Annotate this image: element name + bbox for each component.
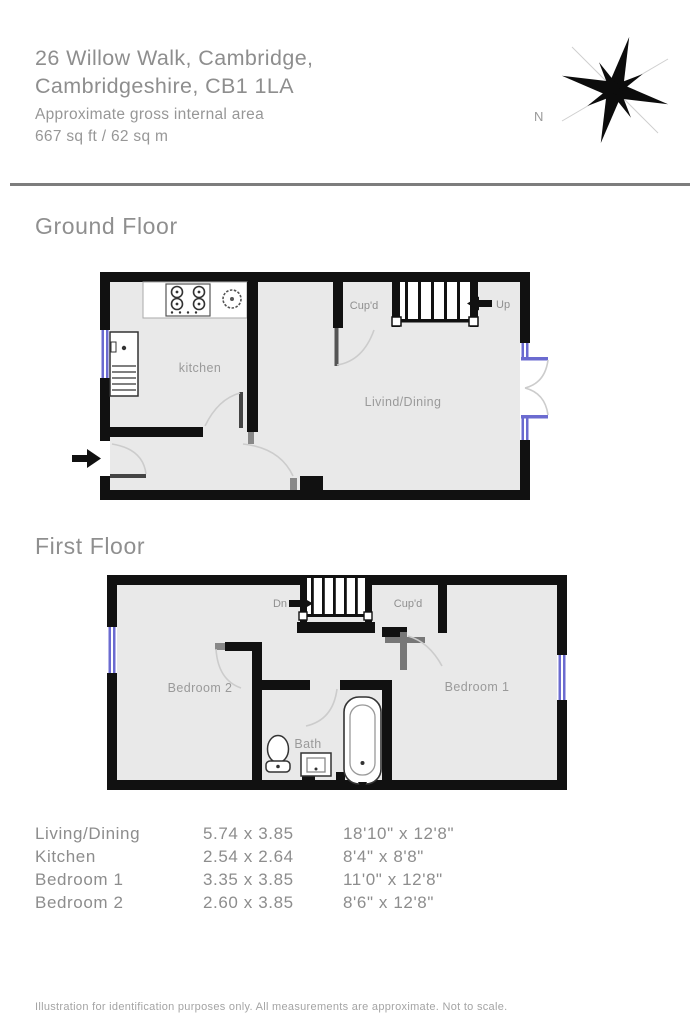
- first-floor-plan: Dn Cup'd: [95, 570, 585, 800]
- address-line-1: 26 Willow Walk, Cambridge,: [35, 44, 313, 72]
- ff-dividing-wall: [252, 642, 262, 782]
- room-metric-size: 2.54 x 2.64: [203, 845, 343, 868]
- basin-icon: [301, 753, 331, 776]
- gf-bottom-wall-pier: [300, 476, 323, 490]
- ff-bedroom1-label: Bedroom 1: [445, 680, 510, 694]
- address-line-2: Cambridgeshire, CB1 1LA: [35, 72, 313, 100]
- floorplan-page: 26 Willow Walk, Cambridge, Cambridgeshir…: [0, 0, 700, 1031]
- gf-kitchen-hall-wall: [110, 427, 203, 437]
- table-row: Living/Dining 5.74 x 3.85 18'10" x 12'8": [35, 822, 505, 845]
- area-line-2: 667 sq ft / 62 sq m: [35, 126, 264, 148]
- header-divider: [10, 183, 690, 186]
- table-row: Bedroom 2 2.60 x 3.85 8'6" x 12'8": [35, 891, 505, 914]
- gf-sink-unit-icon: [110, 332, 138, 396]
- ground-floor-title: Ground Floor: [35, 213, 178, 240]
- gf-kitchen-label: kitchen: [179, 361, 221, 375]
- room-name: Living/Dining: [35, 822, 203, 845]
- room-imperial-size: 18'10" x 12'8": [343, 822, 505, 845]
- table-row: Bedroom 1 3.35 x 3.85 11'0" x 12'8": [35, 868, 505, 891]
- gross-internal-area: Approximate gross internal area 667 sq f…: [35, 104, 264, 148]
- disclaimer-text: Illustration for identification purposes…: [35, 1001, 508, 1013]
- room-name: Bedroom 2: [35, 891, 203, 914]
- dimensions-table: Living/Dining 5.74 x 3.85 18'10" x 12'8"…: [35, 822, 505, 914]
- gf-left-window: [100, 330, 110, 378]
- gf-wall-stub2: [290, 478, 297, 490]
- toilet-icon: [266, 736, 290, 773]
- ff-bedroom2-label: Bedroom 2: [168, 681, 233, 695]
- ff-bath-label: Bath: [294, 737, 321, 751]
- ff-cupboard-label: Cup'd: [394, 598, 422, 610]
- ff-left-window: [107, 627, 117, 673]
- room-metric-size: 3.35 x 3.85: [203, 868, 343, 891]
- first-floor-title: First Floor: [35, 533, 145, 560]
- ff-right-window: [557, 655, 567, 700]
- gf-cupboard-label: Cup'd: [350, 300, 378, 312]
- gf-living-label: Livind/Dining: [365, 395, 442, 409]
- gf-french-doors: [520, 343, 548, 440]
- gf-stairs: [392, 282, 478, 327]
- compass-north-label: N: [534, 109, 543, 124]
- gf-stairs-label: Up: [496, 299, 510, 311]
- compass-rose-icon: N: [520, 25, 690, 170]
- area-line-1: Approximate gross internal area: [35, 104, 264, 126]
- bathtub-icon: [344, 697, 381, 790]
- gf-kitchen-counter: [143, 282, 247, 318]
- table-row: Kitchen 2.54 x 2.64 8'4" x 8'8": [35, 845, 505, 868]
- gf-wall-stub: [248, 432, 254, 444]
- room-imperial-size: 8'6" x 12'8": [343, 891, 505, 914]
- room-name: Kitchen: [35, 845, 203, 868]
- room-metric-size: 2.60 x 3.85: [203, 891, 343, 914]
- room-imperial-size: 11'0" x 12'8": [343, 868, 505, 891]
- ff-cupboard-wall: [438, 585, 447, 633]
- ff-stairs-label: Dn: [273, 598, 287, 610]
- entrance-arrow-icon: [72, 449, 101, 468]
- room-name: Bedroom 1: [35, 868, 203, 891]
- room-metric-size: 5.74 x 3.85: [203, 822, 343, 845]
- gf-kitchen-living-wall: [247, 282, 258, 432]
- property-address: 26 Willow Walk, Cambridge, Cambridgeshir…: [35, 44, 313, 100]
- ground-floor-plan: Cup'd Up: [60, 262, 590, 512]
- room-imperial-size: 8'4" x 8'8": [343, 845, 505, 868]
